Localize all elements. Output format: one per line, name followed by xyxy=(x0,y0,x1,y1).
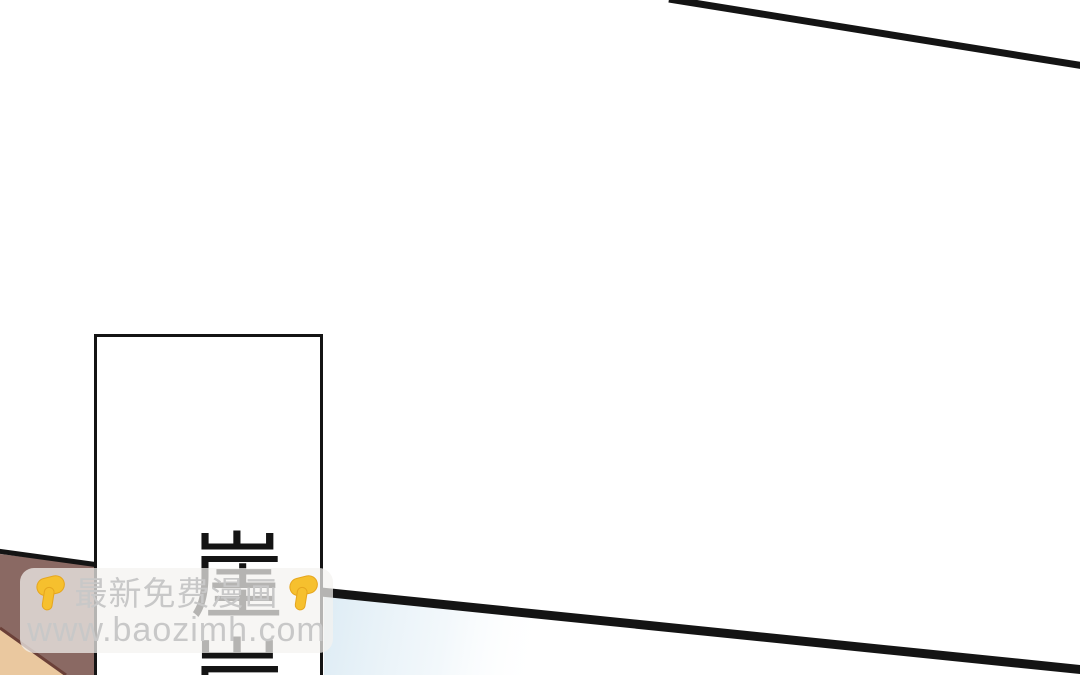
pointing-down-icon xyxy=(285,575,322,612)
watermark-title: 最新免费漫画 xyxy=(75,577,279,610)
panel-line-top-right xyxy=(669,0,1080,66)
comic-page: 崖岸 最新免费漫画 www.baozimh.com xyxy=(0,0,1080,675)
watermark-url: www.baozimh.com xyxy=(27,613,325,647)
watermark-overlay: 最新免费漫画 www.baozimh.com xyxy=(20,568,333,653)
pointing-down-icon xyxy=(32,575,69,612)
watermark-title-row: 最新免费漫画 xyxy=(20,574,333,612)
